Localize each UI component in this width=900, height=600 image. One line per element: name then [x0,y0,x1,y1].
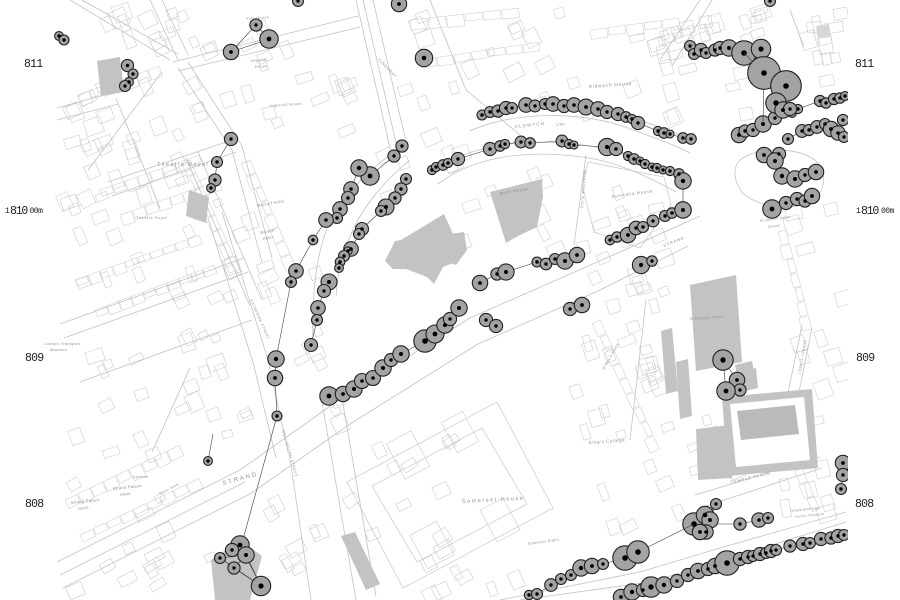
svg-text:London Transport: London Transport [44,341,81,346]
svg-text:00m: 00m [881,207,895,216]
svg-text:810: 810 [10,205,28,218]
svg-text:809: 809 [856,352,875,365]
svg-text:810: 810 [861,205,879,218]
svg-text:808: 808 [855,498,874,511]
svg-text:00m: 00m [30,207,44,216]
svg-text:Museum: Museum [50,347,68,352]
svg-text:811: 811 [24,58,43,71]
svg-text:Theatre Royal: Theatre Royal [136,216,168,220]
svg-text:811: 811 [855,58,874,71]
svg-text:Theatre Royal: Theatre Royal [157,162,209,168]
svg-text:808: 808 [25,498,44,511]
svg-text:Lyceum: Lyceum [133,474,149,479]
svg-text:809: 809 [25,352,44,365]
